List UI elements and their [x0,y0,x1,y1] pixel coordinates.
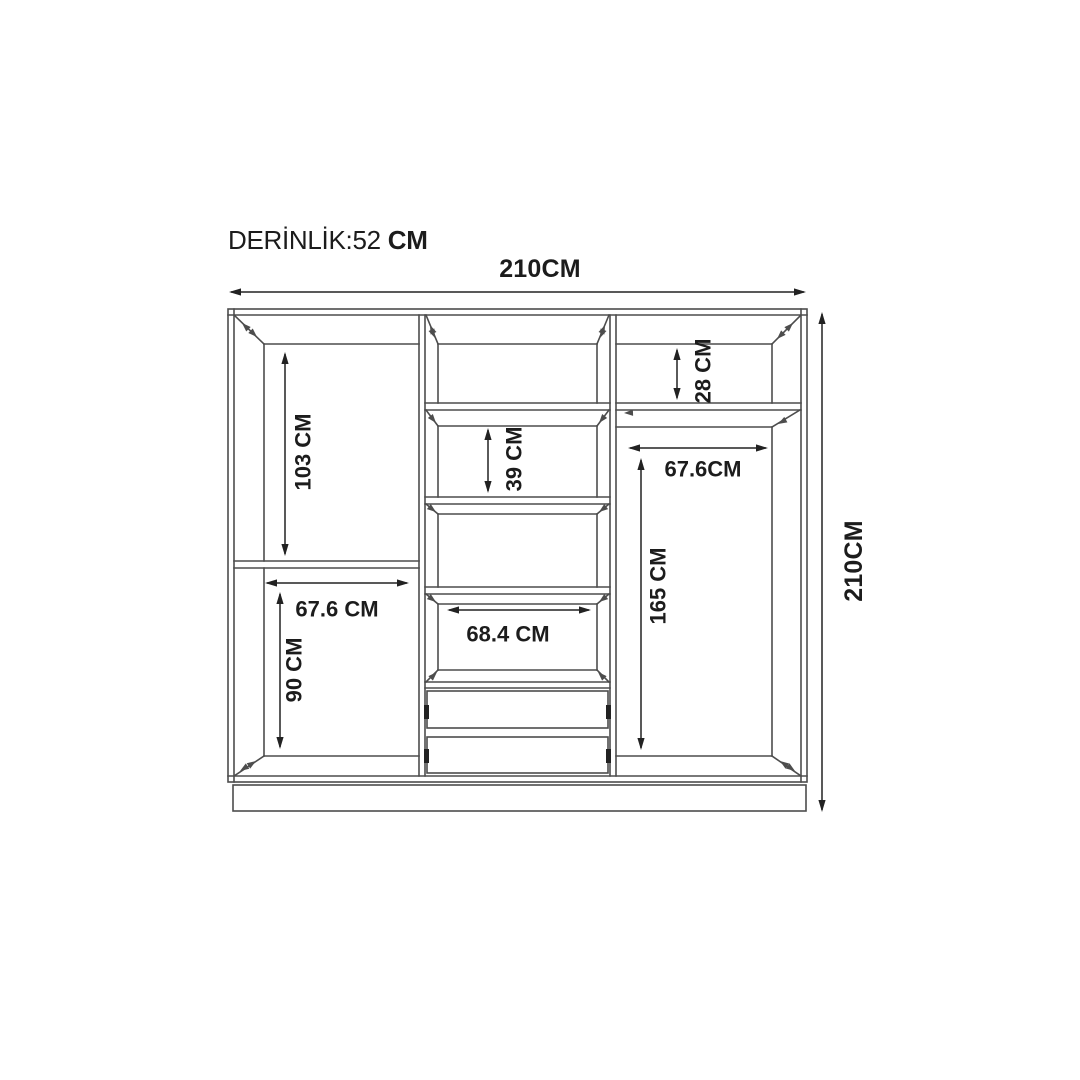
right-lower-height-label: 165 CM [646,547,671,624]
drawer-front-bottom [427,737,608,773]
drawer-handles [424,705,611,763]
dimension-arrowheads [229,288,826,812]
wardrobe-dimension-diagram: DERİNLİK:52CM [0,0,1080,1080]
dimension-labels: 210CM 210CM 103 CM 67.6 CM 90 CM 39 CM 6… [282,255,869,702]
drawer-handle-icon [424,705,429,719]
cabinet-outer-frame [228,309,807,782]
overall-width-label: 210CM [499,255,581,283]
dimension-arrows [229,288,826,812]
drawer-fronts [427,691,608,773]
left-shelf-width-label: 67.6 CM [295,597,378,622]
middle-shelf-height-label: 39 CM [502,427,527,492]
drawer-handle-icon [606,749,611,763]
drawer-handle-icon [606,705,611,719]
middle-shelf-width-label: 68.4 CM [466,622,549,647]
cabinet-structure [228,309,807,811]
left-lower-height-label: 90 CM [282,638,307,703]
cabinet-plinth [233,785,806,811]
drawer-handle-icon [424,749,429,763]
overall-height-label: 210CM [840,520,868,602]
left-upper-height-label: 103 CM [291,413,316,490]
wardrobe-schematic: 210CM 210CM 103 CM 67.6 CM 90 CM 39 CM 6… [0,0,1080,1080]
drawer-front-top [427,691,608,728]
left-section-lines [234,561,419,776]
right-upper-height-label: 28 CM [691,339,716,404]
right-shelf-width-label: 67.6CM [664,457,741,482]
